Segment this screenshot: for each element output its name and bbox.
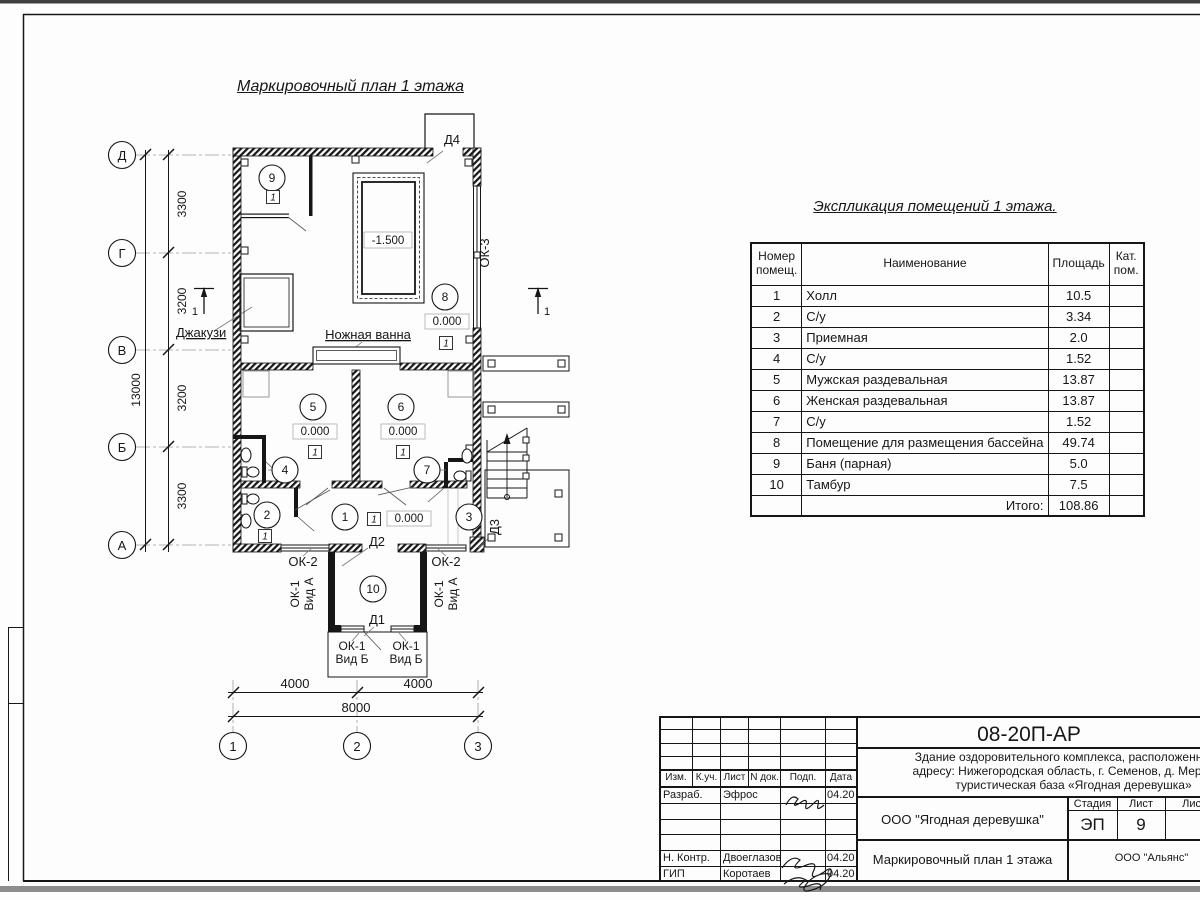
room-name: С/у bbox=[802, 411, 1048, 432]
section-mark-label: 1 bbox=[192, 306, 198, 318]
room-cat bbox=[1109, 327, 1143, 348]
room-bubble: 3 bbox=[466, 510, 473, 524]
entry-canopy bbox=[425, 114, 474, 148]
floor-marker: 1 bbox=[262, 532, 268, 543]
staff-name: Двоеглазов bbox=[723, 852, 781, 864]
entrance-porch bbox=[328, 632, 427, 677]
dim-text-total: 8000 bbox=[342, 700, 371, 715]
room-area: 1.52 bbox=[1048, 348, 1109, 369]
axis-label: Д bbox=[118, 148, 127, 163]
room-bubble: 6 bbox=[398, 400, 405, 414]
room-bubble: 4 bbox=[282, 463, 289, 477]
axis-label: Г bbox=[118, 246, 125, 261]
rev-header-izm: Изм. bbox=[660, 772, 692, 783]
dim-text: 3200 bbox=[175, 384, 189, 411]
foot-bath bbox=[313, 347, 400, 364]
window-label: ОК-2 bbox=[288, 554, 317, 569]
col-header-name: Наименование bbox=[802, 243, 1048, 285]
window-label: ОК-1 bbox=[432, 580, 446, 607]
dim-text: 4000 bbox=[281, 676, 310, 691]
col-header-cat: Кат. пом. bbox=[1109, 243, 1143, 285]
sheet-number: 9 bbox=[1117, 815, 1165, 835]
rev-header-list: Лист bbox=[721, 772, 748, 783]
col-header-area: Площадь bbox=[1048, 243, 1109, 285]
room-num: 4 bbox=[751, 348, 802, 369]
sheet-title: Маркировочный план 1 этажа bbox=[857, 852, 1068, 867]
door-swings bbox=[266, 217, 458, 650]
subject-line2: адресу: Нижегородская область, г. Семено… bbox=[857, 764, 1200, 778]
window-view-label: Вид Б bbox=[390, 652, 423, 666]
section-mark-label: 1 bbox=[544, 306, 550, 318]
room-area: 7.5 bbox=[1048, 474, 1109, 495]
toilet-icon bbox=[454, 471, 466, 481]
room-num: 9 bbox=[751, 453, 802, 474]
door-label: Д1 bbox=[369, 612, 385, 627]
floor-level: 0.000 bbox=[389, 426, 418, 438]
stage-value: ЭП bbox=[1068, 815, 1117, 835]
signatures bbox=[782, 797, 831, 891]
room-name: Холл bbox=[802, 285, 1048, 306]
pool-level: -1.500 bbox=[372, 235, 405, 247]
stair-up-arrow-icon bbox=[504, 433, 511, 444]
room-num: 6 bbox=[751, 390, 802, 411]
room-num: 1 bbox=[751, 285, 802, 306]
rev-header-podp: Подп. bbox=[781, 772, 825, 783]
wall-pilasters bbox=[241, 156, 480, 522]
table-row: 7С/у1.52 bbox=[751, 411, 1144, 432]
window-label: ОК-1 bbox=[339, 639, 366, 653]
dim-text-total: 13000 bbox=[129, 373, 143, 407]
room-area: 10.5 bbox=[1048, 285, 1109, 306]
total-label: Итого: bbox=[802, 495, 1048, 516]
table-row: 2С/у3.34 bbox=[751, 306, 1144, 327]
table-row: 5Мужская раздевальная13.87 bbox=[751, 369, 1144, 390]
floor-marker: 1 bbox=[312, 448, 318, 459]
axis-grid-rows bbox=[109, 142, 232, 559]
axis-label: В bbox=[118, 343, 127, 358]
level-marks: -1.500 0.000 0.000 0.000 0.000 bbox=[293, 232, 469, 526]
company-name: ООО "Ягодная деревушка" bbox=[857, 812, 1068, 827]
axis-label: А bbox=[118, 538, 127, 553]
room-area: 3.34 bbox=[1048, 306, 1109, 327]
rev-header-data: Дата bbox=[826, 772, 856, 783]
room-bubble: 5 bbox=[310, 400, 317, 414]
room-area: 13.87 bbox=[1048, 369, 1109, 390]
room-bubble: 10 bbox=[366, 582, 380, 596]
room-bubble: 9 bbox=[269, 171, 276, 185]
foot-bath-label: Ножная ванна bbox=[325, 327, 412, 342]
room-name: Приемная bbox=[802, 327, 1048, 348]
label-leaders bbox=[214, 151, 493, 641]
table-row: 4С/у1.52 bbox=[751, 348, 1144, 369]
axis-row-dimensions: 3300 3200 3200 3300 13000 bbox=[129, 190, 189, 509]
room-name: С/у bbox=[802, 348, 1048, 369]
toilet-tank-icon bbox=[242, 494, 247, 504]
room-bubble: 8 bbox=[442, 290, 449, 304]
signature bbox=[782, 858, 831, 891]
windows bbox=[281, 186, 481, 632]
room-cat bbox=[1109, 369, 1143, 390]
staff-role: ГИП bbox=[663, 868, 685, 880]
jacuzzi-label: Джакузи bbox=[176, 325, 226, 340]
window-view-label: Вид Б bbox=[336, 652, 369, 666]
room-bubble: 7 bbox=[424, 463, 431, 477]
axis-label: Б bbox=[118, 440, 127, 455]
toilet-icon bbox=[247, 467, 259, 477]
jacuzzi bbox=[240, 274, 293, 331]
room-bubble: 2 bbox=[264, 508, 271, 522]
exterior-ramps bbox=[483, 356, 569, 417]
staff-date: 04.20 bbox=[827, 852, 855, 864]
plan-annotations: Д4 ОК-3 Джакузи Ножная ванна Д2 Д3 Д1 ОК… bbox=[176, 132, 502, 666]
room-name: Мужская раздевальная bbox=[802, 369, 1048, 390]
explication-table: Номер помещ. Наименование Площадь Кат. п… bbox=[750, 242, 1145, 517]
subject-line1: Здание оздоровительного комплекса, распо… bbox=[857, 750, 1200, 764]
drawing-sheet: Маркировочный план 1 этажа Экспликация п… bbox=[0, 0, 1200, 900]
partitions bbox=[233, 156, 473, 632]
staff-name: Эфрос bbox=[723, 789, 758, 801]
room-cat bbox=[1109, 285, 1143, 306]
room-num: 7 bbox=[751, 411, 802, 432]
side-porch bbox=[485, 470, 569, 547]
staff-role: Н. Контр. bbox=[663, 852, 710, 864]
room-num: 3 bbox=[751, 327, 802, 348]
sink-icon bbox=[462, 449, 472, 463]
room-area: 5.0 bbox=[1048, 453, 1109, 474]
subject-line3: туристическая база «Ягодная деревушка» bbox=[857, 778, 1200, 792]
window-label: ОК-1 bbox=[288, 580, 302, 607]
sink-icon bbox=[241, 448, 251, 462]
table-row: 9Баня (парная)5.0 bbox=[751, 453, 1144, 474]
sink-icon bbox=[241, 514, 251, 528]
dim-text: 4000 bbox=[404, 676, 433, 691]
table-row: 1Холл10.5 bbox=[751, 285, 1144, 306]
room-cat bbox=[1109, 390, 1143, 411]
room-area: 1.52 bbox=[1048, 411, 1109, 432]
room-bubble: 1 bbox=[342, 510, 349, 524]
axis-col-labels: 1 2 3 4000 4000 8000 bbox=[229, 676, 481, 754]
room-num: 8 bbox=[751, 432, 802, 453]
room-area: 2.0 bbox=[1048, 327, 1109, 348]
room-cat bbox=[1109, 453, 1143, 474]
total-row: Итого: 108.86 bbox=[751, 495, 1144, 516]
section-marks bbox=[194, 287, 548, 314]
dim-text: 3200 bbox=[175, 287, 189, 314]
doc-number: 08-20П-АР bbox=[857, 723, 1200, 747]
toilet-tank-icon bbox=[242, 467, 247, 477]
floor-level: 0.000 bbox=[301, 426, 330, 438]
contractor-name: ООО "Альянс" bbox=[1068, 852, 1200, 864]
sheets-label: Листов bbox=[1165, 798, 1200, 810]
walls bbox=[233, 148, 484, 552]
axis-label: 2 bbox=[353, 739, 360, 754]
axis-grid-cols bbox=[220, 680, 492, 760]
table-row: 3Приемная2.0 bbox=[751, 327, 1144, 348]
toilet-tank-icon bbox=[466, 471, 471, 481]
total-value: 108.86 bbox=[1048, 495, 1109, 516]
room-area: 13.87 bbox=[1048, 390, 1109, 411]
table-row: 8Помещение для размещения бассейна49.74 bbox=[751, 432, 1144, 453]
room-cat bbox=[1109, 474, 1143, 495]
room-cat bbox=[1109, 348, 1143, 369]
signature bbox=[784, 878, 821, 890]
dim-text: 3300 bbox=[175, 190, 189, 217]
room-name: Тамбур bbox=[802, 474, 1048, 495]
toilet-icon bbox=[247, 494, 259, 504]
door-label: Д3 bbox=[487, 519, 502, 535]
room-bubbles: 1 2 3 4 5 6 7 8 9 10 bbox=[254, 165, 482, 602]
dim-text: 3300 bbox=[175, 482, 189, 509]
floor-marker: 1 bbox=[371, 515, 377, 526]
room-cat bbox=[1109, 306, 1143, 327]
rev-header-kuch: К.уч. bbox=[693, 772, 720, 783]
room-num: 5 bbox=[751, 369, 802, 390]
col-header-num: Номер помещ. bbox=[751, 243, 802, 285]
floor-marker: 1 bbox=[270, 193, 276, 204]
room-num: 10 bbox=[751, 474, 802, 495]
room-num: 2 bbox=[751, 306, 802, 327]
sanitary-fixtures bbox=[241, 448, 472, 528]
table-row: 10Тамбур7.5 bbox=[751, 474, 1144, 495]
room-cat bbox=[1109, 432, 1143, 453]
window-label: ОК-2 bbox=[431, 554, 460, 569]
benches bbox=[243, 371, 474, 397]
floor-level: 0.000 bbox=[433, 316, 462, 328]
stage-label: Стадия bbox=[1068, 798, 1117, 810]
pool bbox=[353, 173, 424, 303]
room-cat bbox=[1109, 411, 1143, 432]
room-area: 49.74 bbox=[1048, 432, 1109, 453]
plan-title: Маркировочный план 1 этажа bbox=[233, 78, 468, 96]
window-label: ОК-1 bbox=[393, 639, 420, 653]
staff-date: 04.20 bbox=[827, 789, 855, 801]
door-label: Д2 bbox=[369, 534, 385, 549]
rev-header-ndok: N док. bbox=[749, 772, 780, 783]
floor-type-markers: 1 1 1 1 1 1 bbox=[259, 191, 453, 543]
axis-row-labels: Д Г В Б А bbox=[118, 148, 127, 553]
floor-marker: 1 bbox=[443, 339, 449, 350]
staff-date: 04.20 bbox=[827, 868, 855, 880]
explication-title: Экспликация помещений 1 этажа. bbox=[800, 198, 1070, 215]
staff-name: Коротаев bbox=[723, 868, 771, 880]
room-name: С/у bbox=[802, 306, 1048, 327]
door-label: Д4 bbox=[444, 132, 460, 147]
axis-label: 3 bbox=[474, 739, 481, 754]
floor-level: 0.000 bbox=[395, 513, 424, 525]
room-name: Помещение для размещения бассейна bbox=[802, 432, 1048, 453]
staff-role: Разраб. bbox=[663, 789, 703, 801]
table-row: 6Женская раздевальная13.87 bbox=[751, 390, 1144, 411]
exterior-stair bbox=[487, 428, 529, 500]
window-view-label: Вид А bbox=[446, 577, 460, 610]
axis-label: 1 bbox=[229, 739, 236, 754]
room-name: Женская раздевальная bbox=[802, 390, 1048, 411]
sheet-label: Лист bbox=[1117, 798, 1165, 810]
window-view-label: Вид А bbox=[302, 577, 316, 610]
floor-marker: 1 bbox=[400, 448, 406, 459]
window-label: ОК-3 bbox=[477, 238, 492, 267]
room-name: Баня (парная) bbox=[802, 453, 1048, 474]
